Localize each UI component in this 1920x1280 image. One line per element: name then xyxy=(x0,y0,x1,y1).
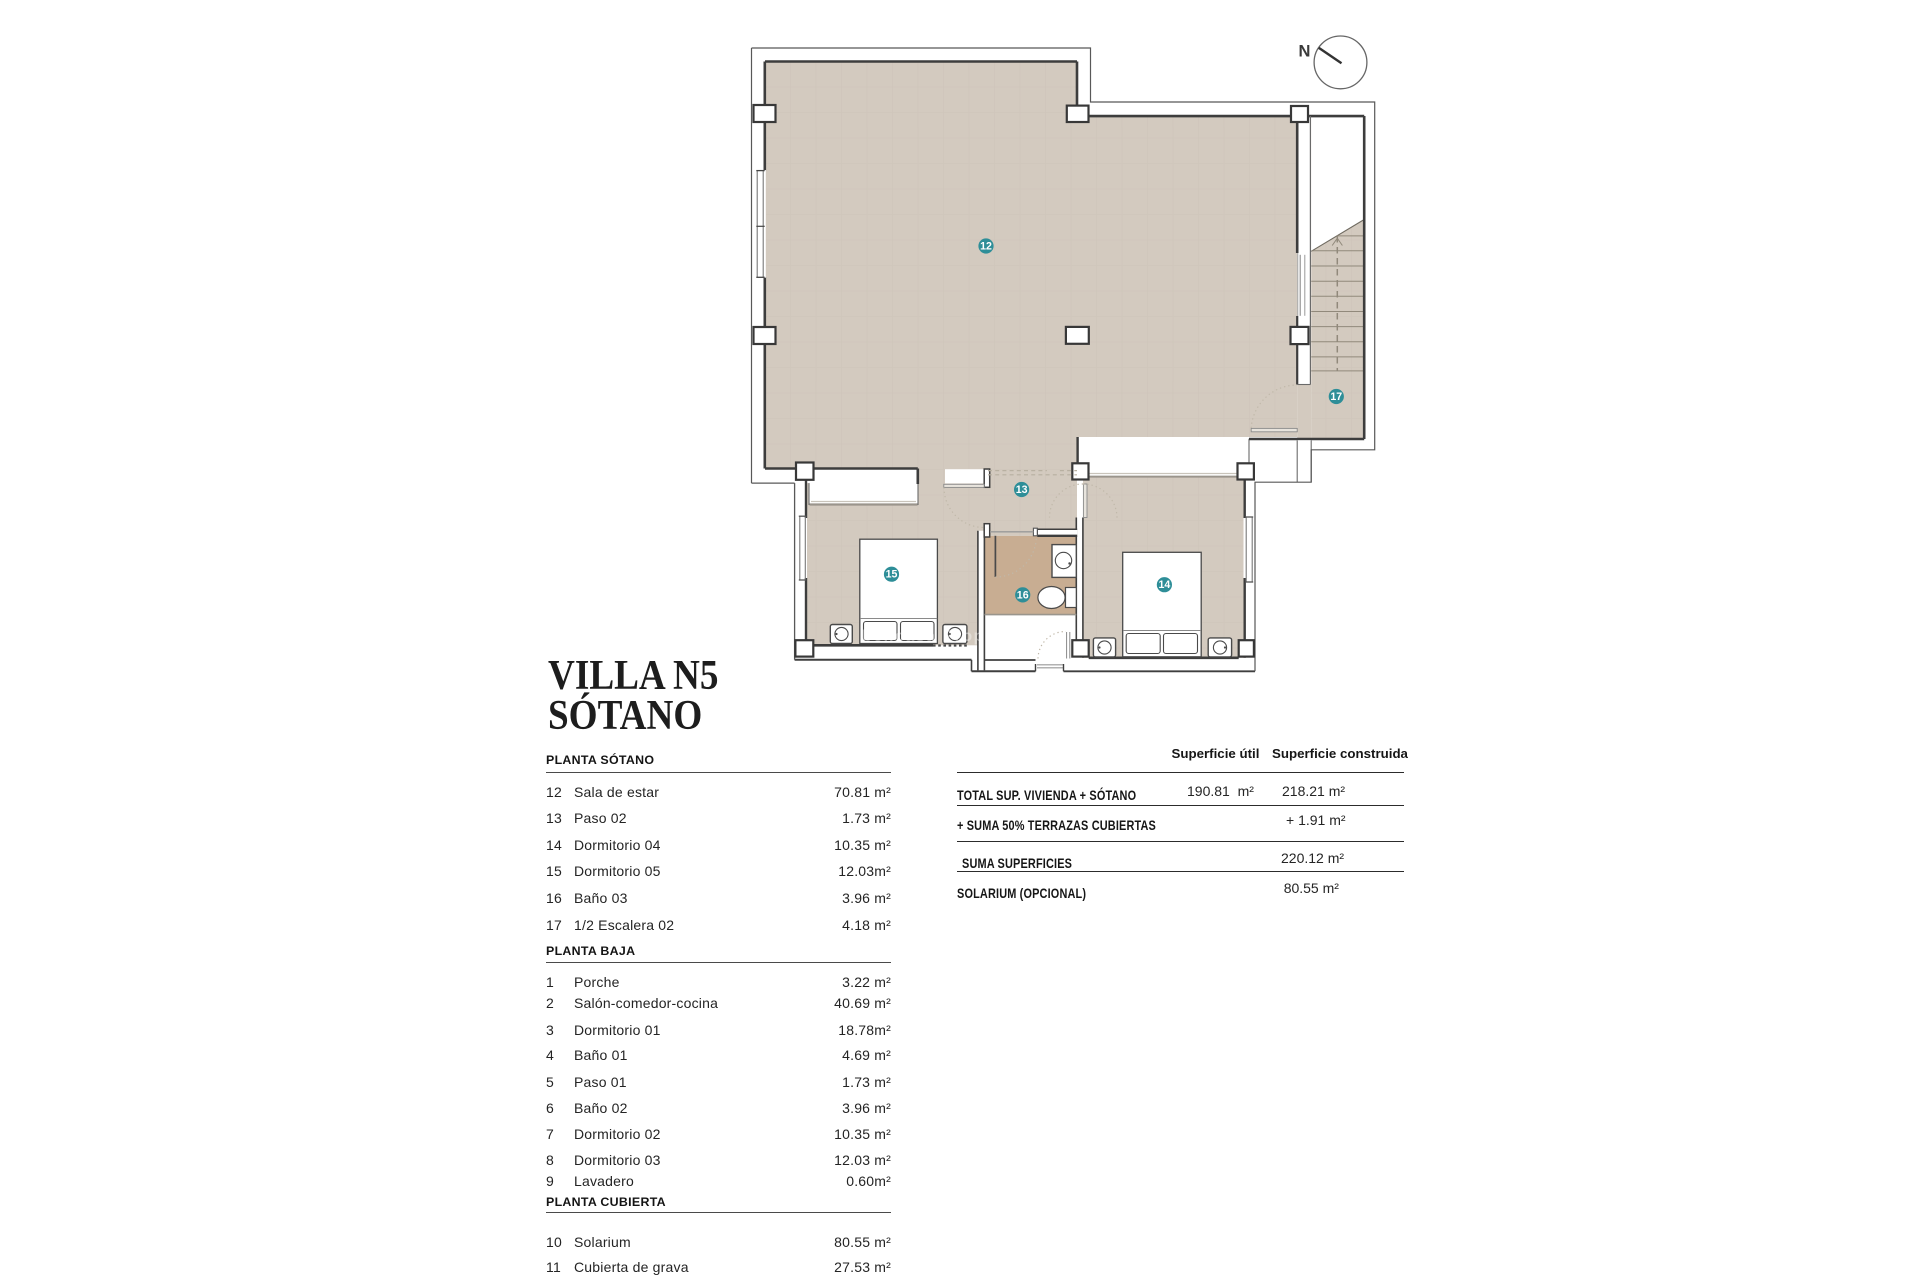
svg-text:17: 17 xyxy=(1330,391,1342,403)
svg-text:14: 14 xyxy=(1159,579,1171,591)
svg-text:12: 12 xyxy=(980,240,992,252)
svg-text:15: 15 xyxy=(886,569,898,581)
svg-text:16: 16 xyxy=(1017,589,1029,601)
svg-text:N: N xyxy=(1299,43,1311,61)
svg-text:bencasa Prope: bencasa Prope xyxy=(862,628,995,645)
svg-text:13: 13 xyxy=(1016,484,1028,496)
